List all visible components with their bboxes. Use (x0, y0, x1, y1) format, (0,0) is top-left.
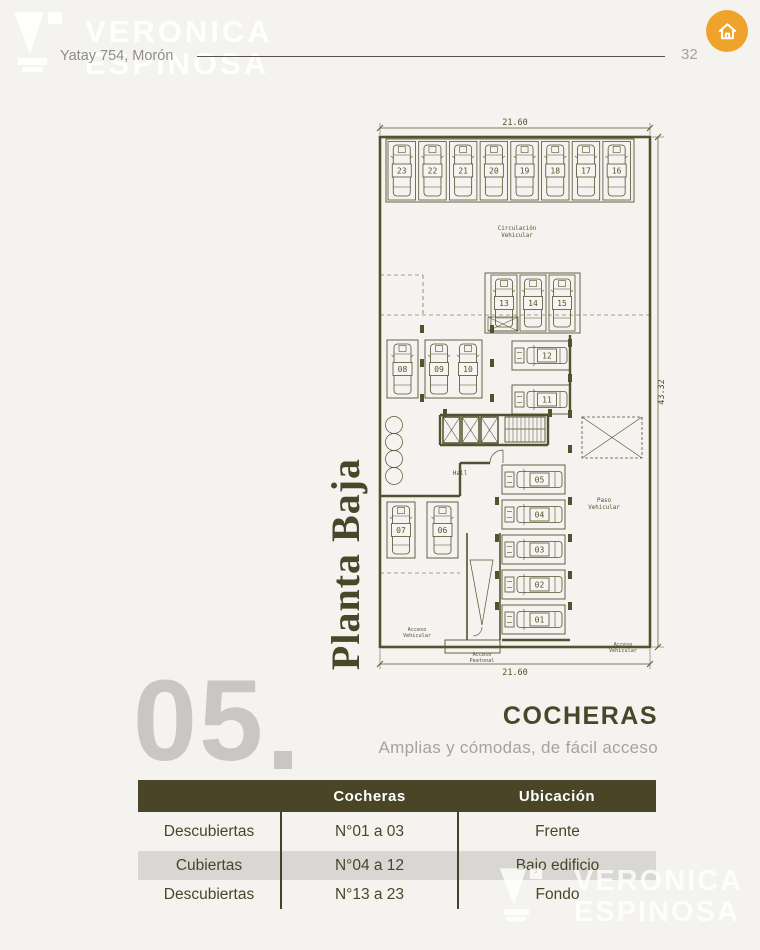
svg-text:21.60: 21.60 (502, 668, 528, 678)
table-cell: Frente (458, 812, 656, 851)
svg-text:12: 12 (542, 352, 552, 361)
home-icon (716, 20, 739, 43)
svg-text:16: 16 (612, 167, 622, 176)
svg-text:23: 23 (397, 167, 407, 176)
parking-spot-01: 01 (505, 609, 562, 630)
svg-text:18: 18 (550, 167, 560, 176)
table-header-row: CocherasUbicación (138, 780, 656, 812)
svg-text:Vehicular: Vehicular (588, 505, 620, 511)
svg-text:Paso: Paso (597, 498, 611, 504)
parking-spot-23: 23 (391, 145, 413, 196)
section-subtitle: Amplias y cómodas, de fácil acceso (379, 738, 659, 758)
table-cell: N°13 a 23 (281, 880, 458, 909)
svg-text:Vehicular: Vehicular (403, 633, 431, 639)
table-cell: Descubiertas (138, 880, 281, 909)
page-number: 32 (681, 46, 698, 63)
section-heading: COCHERAS Amplias y cómodas, de fácil acc… (379, 702, 659, 758)
stairs (505, 417, 545, 442)
table-cell: Cubiertas (138, 851, 281, 880)
parking-spot-08: 08 (392, 344, 414, 394)
parking-spot-06: 06 (432, 506, 454, 554)
table-cell: N°01 a 03 (281, 812, 458, 851)
floor-plan-drawing: 21.6021.6043.322322212019181716Circulaci… (372, 113, 668, 680)
parking-spot-19: 19 (514, 145, 536, 196)
svg-text:21: 21 (458, 167, 468, 176)
parking-spot-04: 04 (505, 504, 562, 525)
section-number-digits: 05 (133, 664, 265, 779)
project-address: Yatay 754, Morón (60, 48, 173, 64)
brand-logo-icon (498, 866, 544, 922)
svg-text:05: 05 (535, 476, 545, 485)
home-button[interactable] (706, 10, 748, 52)
table-header-cell: Ubicación (458, 780, 656, 812)
parking-spot-14: 14 (522, 279, 544, 327)
svg-text:22: 22 (428, 167, 438, 176)
parking-spot-17: 17 (575, 145, 597, 196)
parking-spot-18: 18 (544, 145, 566, 196)
table-cell: N°04 a 12 (281, 851, 458, 880)
parking-spot-02: 02 (505, 574, 562, 595)
elevators (443, 417, 498, 443)
brand-watermark-line1: VERONICA (574, 866, 743, 897)
brand-logo-icon (12, 10, 64, 72)
parking-spot-03: 03 (505, 539, 562, 560)
section-number-dot: . (274, 751, 292, 769)
svg-text:13: 13 (499, 299, 509, 308)
brochure-page: VERONICA ESPINOSA Yatay 754, Morón 32 21… (0, 0, 760, 950)
svg-text:11: 11 (542, 396, 552, 405)
plan-title: Planta Baja (322, 434, 370, 694)
svg-text:06: 06 (438, 526, 448, 535)
svg-text:Hall: Hall (453, 470, 468, 477)
svg-text:03: 03 (535, 546, 545, 555)
svg-text:Peatonal: Peatonal (470, 658, 495, 664)
parking-spot-10: 10 (457, 344, 479, 394)
svg-text:09: 09 (434, 365, 444, 374)
svg-text:17: 17 (581, 167, 591, 176)
parking-spot-05: 05 (505, 469, 562, 490)
svg-text:Circulación: Circulación (498, 225, 536, 232)
svg-text:21.60: 21.60 (502, 118, 528, 128)
brand-watermark-line2: ESPINOSA (574, 897, 743, 928)
parking-spot-20: 20 (483, 145, 505, 196)
table-header-cell (138, 780, 281, 812)
table-row: DescubiertasN°01 a 03Frente (138, 812, 656, 851)
parking-spot-21: 21 (452, 145, 474, 196)
svg-text:Vehicular: Vehicular (501, 233, 533, 239)
svg-text:20: 20 (489, 167, 499, 176)
brand-watermark-bottom: VERONICA ESPINOSA (498, 866, 743, 928)
svg-text:02: 02 (535, 581, 545, 590)
svg-text:07: 07 (396, 526, 406, 535)
svg-text:08: 08 (398, 365, 408, 374)
parking-spot-09: 09 (428, 344, 450, 394)
section-number: 05. (133, 664, 292, 779)
parking-spot-16: 16 (606, 145, 628, 196)
svg-text:19: 19 (520, 167, 530, 176)
table-cell: Descubiertas (138, 812, 281, 851)
svg-text:10: 10 (463, 365, 473, 374)
svg-text:15: 15 (557, 299, 567, 308)
parking-spot-07: 07 (390, 506, 412, 554)
svg-text:14: 14 (528, 299, 538, 308)
svg-text:Vehicular: Vehicular (609, 648, 637, 654)
section-title: COCHERAS (379, 702, 659, 731)
parking-spot-11: 11 (515, 389, 567, 410)
parking-spot-22: 22 (421, 145, 443, 196)
svg-text:01: 01 (535, 616, 545, 625)
parking-spot-12: 12 (515, 345, 567, 366)
table-header-cell: Cocheras (281, 780, 458, 812)
svg-text:04: 04 (535, 511, 545, 520)
brand-watermark-line1: VERONICA (85, 14, 273, 50)
parking-spot-15: 15 (551, 279, 573, 327)
header-divider (197, 56, 665, 57)
svg-text:43.32: 43.32 (657, 379, 667, 405)
